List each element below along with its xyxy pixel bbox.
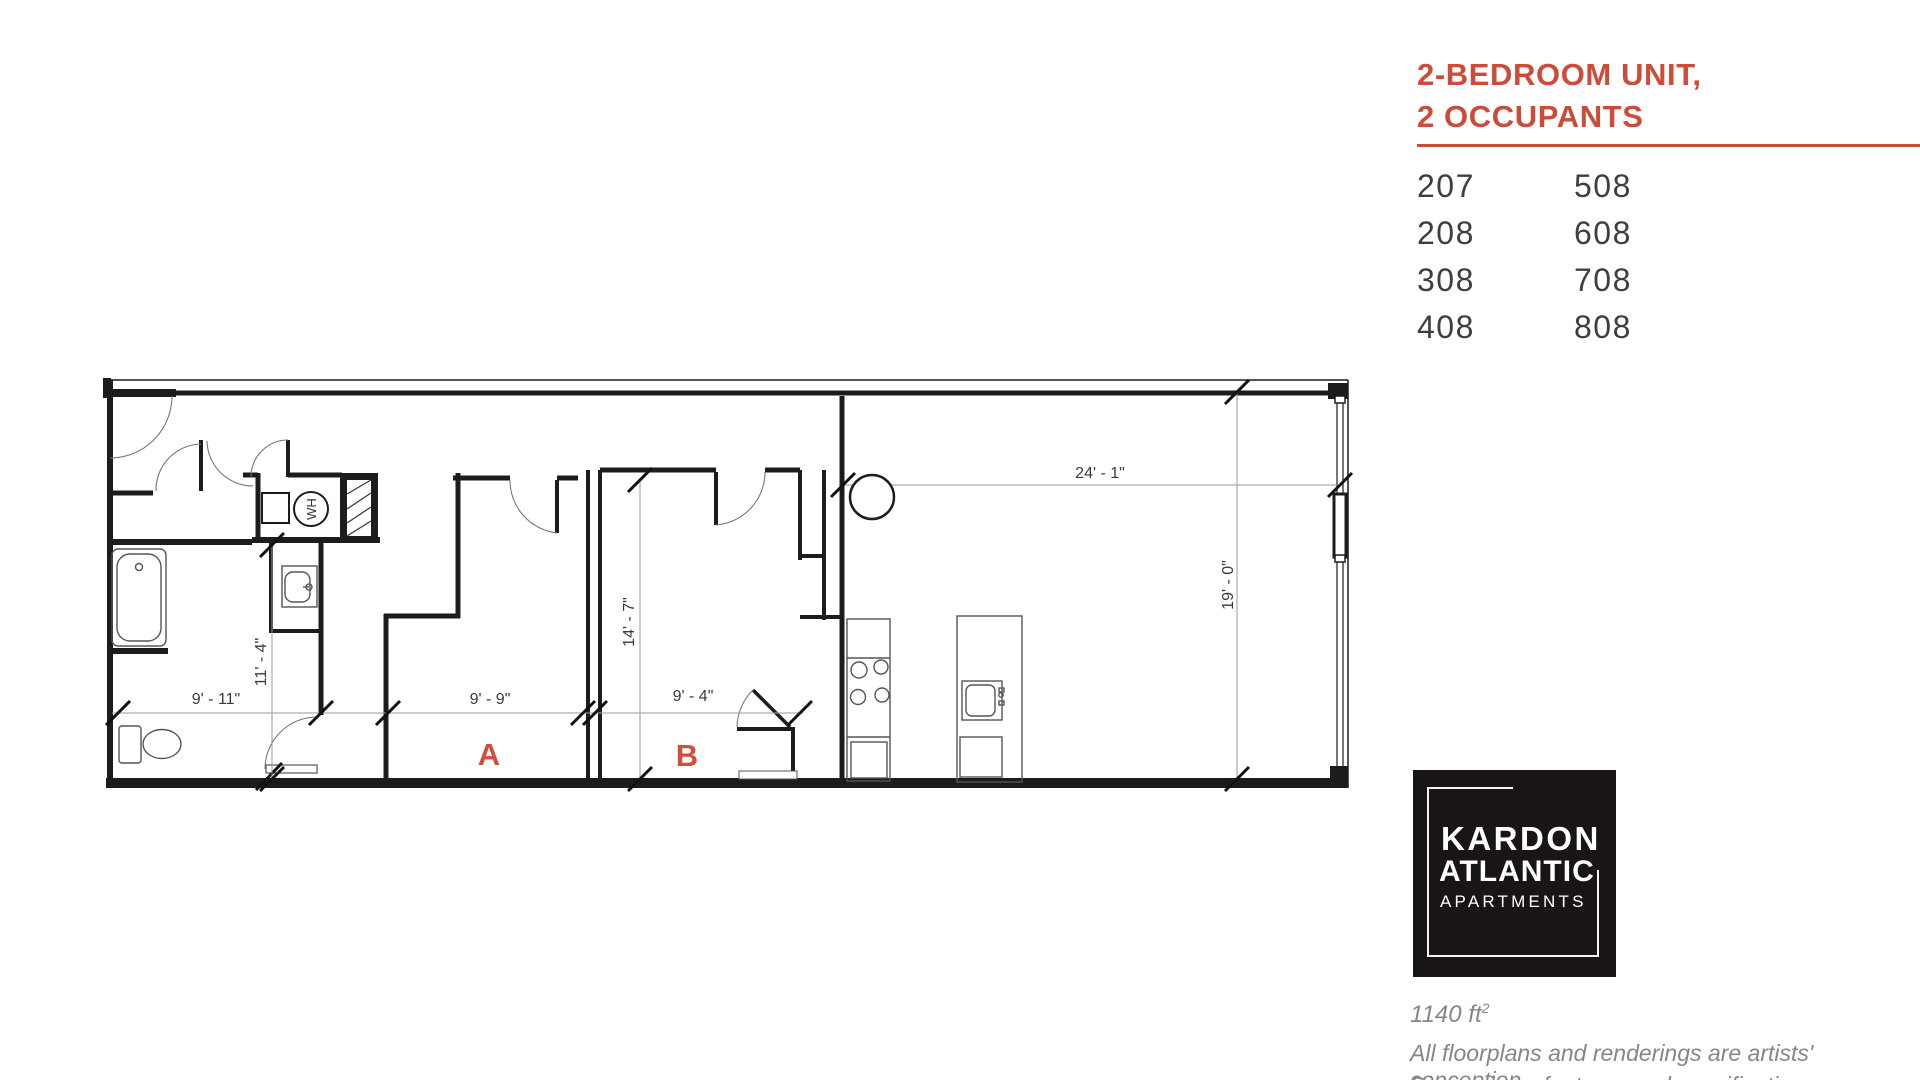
unit-area: 1140 ft2 [1410, 1000, 1489, 1029]
logo-frame-left [1427, 787, 1429, 957]
unit-number: 808 [1574, 304, 1632, 351]
page-title-line2: 2 OCCUPANTS [1417, 96, 1702, 138]
logo-text-apartments: APARTMENTS [1440, 892, 1587, 912]
bedroom-b-closet-door [737, 690, 797, 779]
stove-counter [847, 619, 890, 781]
unit-table-row: 308708 [1417, 257, 1632, 304]
kardon-atlantic-logo: KARDON ATLANTIC APARTMENTS [1413, 770, 1616, 977]
room-label-bedroom-b: B [676, 738, 698, 773]
dim-bath-width: 9' - 11" [192, 691, 240, 708]
logo-text-kardon: KARDON [1441, 820, 1601, 858]
page-title: 2-BEDROOM UNIT, 2 OCCUPANTS [1417, 54, 1702, 138]
dim-bedroom-depth: 14' - 7" [621, 597, 638, 647]
unit-number: 207 [1417, 163, 1574, 210]
dim-living-width: 24' - 1" [1075, 465, 1125, 482]
island-sink [962, 681, 1004, 720]
water-heater-label: WH [304, 498, 319, 520]
interior-walls [108, 396, 842, 782]
logo-frame-bottom [1427, 955, 1599, 957]
chase-hatch [340, 473, 378, 543]
logo-frame-top [1427, 787, 1513, 789]
unit-number: 608 [1574, 210, 1632, 257]
bedroom-b-door [716, 472, 765, 525]
disclaimer-line2: Dimensions, features and specifications … [1410, 1072, 1920, 1080]
column [850, 475, 894, 519]
dim-bedroom-a-width: 9' - 9" [470, 691, 511, 708]
unit-area-value: 1140 ft [1410, 1001, 1482, 1028]
title-underline [1417, 144, 1920, 147]
dim-bath-depth: 11' - 4" [253, 638, 270, 686]
unit-number-table: 207508 208608 308708 408808 [1417, 163, 1632, 351]
hall-closet-doors [156, 440, 253, 491]
dim-bedroom-b-width: 9' - 4" [673, 688, 714, 705]
unit-table-row: 207508 [1417, 163, 1632, 210]
dim-living-depth: 19' - 0" [1220, 560, 1237, 610]
bathroom-sink [282, 566, 317, 607]
unit-number: 408 [1417, 304, 1574, 351]
water-heater: WH [294, 492, 328, 526]
window-wall [1330, 396, 1348, 784]
bedroom-a-door [510, 480, 557, 533]
entry-door [110, 389, 176, 458]
floorplan-sheet: WH [0, 0, 1920, 1080]
unit-area-exponent: 2 [1482, 1000, 1490, 1016]
electrical-panel [262, 493, 289, 523]
bathtub [112, 549, 166, 646]
unit-number: 208 [1417, 210, 1574, 257]
exterior-walls [103, 378, 1348, 788]
room-label-bedroom-a: A [478, 737, 500, 772]
dimension-ticks [106, 380, 1352, 791]
unit-number: 508 [1574, 163, 1632, 210]
unit-number: 308 [1417, 257, 1574, 304]
kitchen-island [957, 616, 1022, 782]
page-title-line1: 2-BEDROOM UNIT, [1417, 54, 1702, 96]
floorplan-drawing: WH [0, 0, 1920, 1080]
dimension-lines [112, 390, 1340, 781]
unit-number: 708 [1574, 257, 1632, 304]
toilet [119, 726, 181, 763]
logo-frame-right [1597, 870, 1599, 957]
utility-door [251, 440, 288, 477]
unit-table-row: 208608 [1417, 210, 1632, 257]
logo-text-atlantic: ATLANTIC [1439, 855, 1595, 889]
unit-table-row: 408808 [1417, 304, 1632, 351]
